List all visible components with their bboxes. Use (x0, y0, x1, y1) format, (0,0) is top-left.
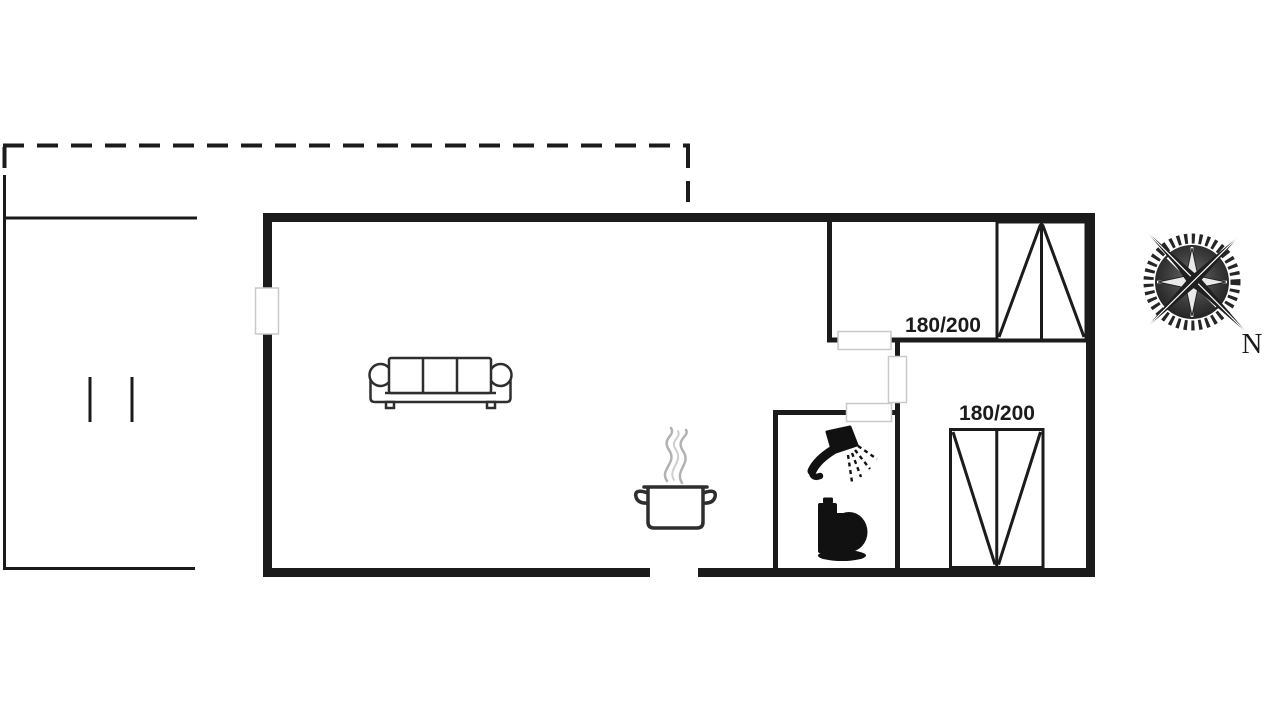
door-bathroom (847, 404, 892, 422)
sofa-back (389, 358, 491, 393)
spray-ray-4 (848, 455, 852, 482)
floor-plan-page: 180/200 180/200 N (0, 0, 1280, 720)
toilet-bowl (831, 512, 868, 552)
double-bed-top (997, 222, 1086, 340)
pot-handle-left (636, 491, 648, 503)
north-label: N (1242, 328, 1263, 360)
spray-ray-2 (855, 450, 870, 469)
compass-rose-icon: N (1146, 231, 1263, 360)
pot-body (648, 487, 703, 528)
floor-plan-svg: 180/200 180/200 N (0, 0, 1280, 720)
double-bed-bottom (951, 430, 1044, 568)
cooking-pot-icon (636, 428, 716, 528)
steam-wisp-right (680, 430, 687, 483)
toilet-base (818, 550, 866, 561)
steam-wisp-middle (672, 431, 679, 480)
sofa-foot-left (386, 402, 394, 408)
shower-spray (848, 446, 877, 482)
pot-handle-right (703, 491, 715, 503)
steam-wisp-left (665, 428, 672, 481)
sofa-arm-right (490, 364, 512, 386)
shower-head (827, 427, 857, 453)
door-bedroom-top (838, 332, 891, 350)
terrace-dashed-outline (3, 146, 690, 214)
sofa-icon (370, 358, 512, 408)
window-left-wall (256, 288, 279, 334)
door-bedroom-bottom (889, 357, 907, 403)
sofa-foot-right (487, 402, 495, 408)
toilet-icon (818, 498, 868, 562)
toilet-button (823, 498, 833, 504)
carport-annex (3, 175, 197, 570)
shower-icon (812, 427, 877, 482)
shower-arm (812, 450, 833, 471)
bed-size-label-bottom: 180/200 (959, 402, 1035, 425)
bed-size-label-top: 180/200 (905, 314, 981, 337)
steam-icon (665, 428, 687, 483)
